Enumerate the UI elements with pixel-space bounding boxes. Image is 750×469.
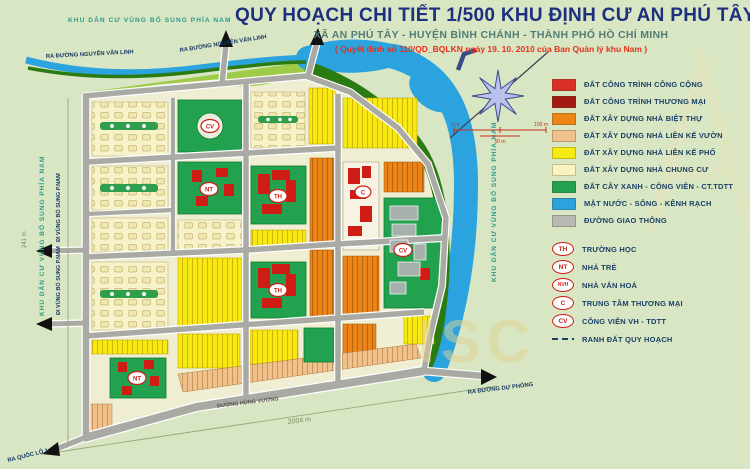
exit-label-vbs-2: ĐI VÙNG BỔ SUNG P.NAM — [55, 246, 62, 315]
exit-label-vbs-1: ĐI VÙNG BỔ SUNG P.NAM — [55, 173, 62, 242]
legend-boundary: RANH ĐẤT QUY HOẠCH — [552, 330, 749, 348]
arrow-west-2 — [36, 317, 52, 331]
legend-swatch — [552, 113, 576, 125]
exit-label-duphong: RA ĐƯỜNG DỰ PHÒNG — [467, 380, 534, 396]
legend-swatch — [552, 130, 576, 142]
page-title: QUY HOẠCH CHI TIẾT 1/500 KHU ĐỊNH CƯ AN … — [235, 5, 747, 27]
road-stub-west — [48, 250, 86, 324]
legend-swatch — [552, 96, 576, 108]
planning-map-page: { "header": { "area_label": "KHU DÂN CƯ … — [0, 0, 750, 469]
side-label-west: KHU DÂN CƯ VÙNG BỔ SUNG PHÍA NAM — [37, 156, 46, 316]
legend-item: ĐƯỜNG GIAO THÔNG — [552, 212, 749, 229]
block-rowhouse — [178, 258, 242, 328]
svg-text:CV: CV — [206, 125, 214, 131]
scale-start: 0 m — [451, 122, 459, 128]
svg-text:CV: CV — [399, 249, 407, 255]
legend-swatch — [552, 198, 576, 210]
c-badge: C — [355, 186, 371, 198]
nt-badge: NT — [200, 183, 218, 196]
decision-note: ( Quyết định số 110/QD_BQLKN ngày 19. 10… — [235, 44, 747, 54]
legend-symbol: NVHNHÀ VĂN HOÁ — [552, 276, 749, 294]
svg-text:NT: NT — [133, 377, 141, 383]
legend-item: ĐẤT CÔNG TRÌNH CÔNG CỘNG — [552, 76, 749, 93]
svg-text:NT: NT — [205, 188, 213, 194]
exit-label-nvl-1: RA ĐƯỜNG NGUYỄN VĂN LINH — [46, 47, 134, 60]
nvh-legend-badge: NVH — [552, 278, 574, 292]
svg-text:TH: TH — [274, 195, 282, 201]
th-legend-badge: TH — [552, 242, 574, 256]
svg-text:C: C — [361, 191, 366, 197]
block-apartment — [178, 220, 242, 250]
block-rowhouse — [178, 334, 240, 368]
region-label: KHU DÂN CƯ VÙNG BỔ SUNG PHÍA NAM — [68, 17, 232, 24]
legend-item: MẶT NƯỚC - SÔNG - KÊNH RẠCH — [552, 195, 749, 212]
legend-panel: ĐẤT CÔNG TRÌNH CÔNG CỘNG ĐẤT CÔNG TRÌNH … — [552, 76, 749, 348]
block-villa — [310, 250, 334, 316]
legend-item: ĐẤT XÂY DỰNG NHÀ LIÊN KẾ PHỐ — [552, 144, 749, 161]
dimension-west: 241 m — [22, 231, 28, 248]
legend-item: ĐẤT XÂY DỰNG NHÀ CHUNG CƯ — [552, 161, 749, 178]
legend-item: ĐẤT CÂY XANH - CÔNG VIÊN - CT.TDTT — [552, 178, 749, 195]
cv-badge: CV — [201, 120, 219, 133]
nt-legend-badge: NT — [552, 260, 574, 274]
scale-end: 100 m — [534, 122, 548, 128]
block-rowhouse — [92, 340, 168, 354]
scale-mid: 50 m — [494, 139, 505, 145]
nt2-badge: NT — [128, 372, 146, 385]
c-legend-badge: C — [552, 296, 574, 310]
block-rowhouse — [250, 330, 298, 364]
th-badge: TH — [269, 190, 287, 203]
boundary-dash-icon — [552, 338, 574, 340]
legend-item: ĐẤT XÂY DỰNG NHÀ LIÊN KẾ VƯỜN — [552, 127, 749, 144]
park-small — [304, 328, 334, 362]
block-rowhouse — [309, 88, 335, 144]
side-label-east: KHU DÂN CƯ VÙNG BỔ SUNG PHÍA NAM — [489, 122, 498, 282]
svg-text:TH: TH — [274, 289, 282, 295]
legend-swatch — [552, 164, 576, 176]
block-villa — [310, 158, 334, 246]
cv2-badge: CV — [394, 244, 412, 257]
legend-symbol: THTRƯỜNG HỌC — [552, 240, 749, 258]
legend-swatch — [552, 79, 576, 91]
block-villa — [343, 256, 379, 314]
exit-label-ql1: RA QUỐC LỘ 1 — [7, 446, 50, 464]
legend-swatch — [552, 181, 576, 193]
legend-item: ĐẤT XÂY DỰNG NHÀ BIỆT THỰ — [552, 110, 749, 127]
th2-badge: TH — [269, 284, 287, 297]
legend-symbol: CTRUNG TÂM THƯƠNG MẠI — [552, 294, 749, 312]
block-villa — [384, 162, 424, 192]
legend-item: ĐẤT CÔNG TRÌNH THƯƠNG MẠI — [552, 93, 749, 110]
legend-swatch — [552, 147, 576, 159]
map-header: QUY HOẠCH CHI TIẾT 1/500 KHU ĐỊNH CƯ AN … — [235, 5, 747, 54]
dimension-south: 2004 m — [287, 416, 311, 426]
legend-symbol: NTNHÀ TRẺ — [552, 258, 749, 276]
cv-legend-badge: CV — [552, 314, 574, 328]
legend-swatch — [552, 215, 576, 227]
block-apartment — [92, 218, 168, 252]
page-subtitle: XÃ AN PHÚ TÂY - HUYỆN BÌNH CHÁNH - THÀNH… — [235, 29, 747, 41]
legend-symbol: CVCÔNG VIÊN VH - TDTT — [552, 312, 749, 330]
svg-text:ISC: ISC — [418, 308, 536, 375]
